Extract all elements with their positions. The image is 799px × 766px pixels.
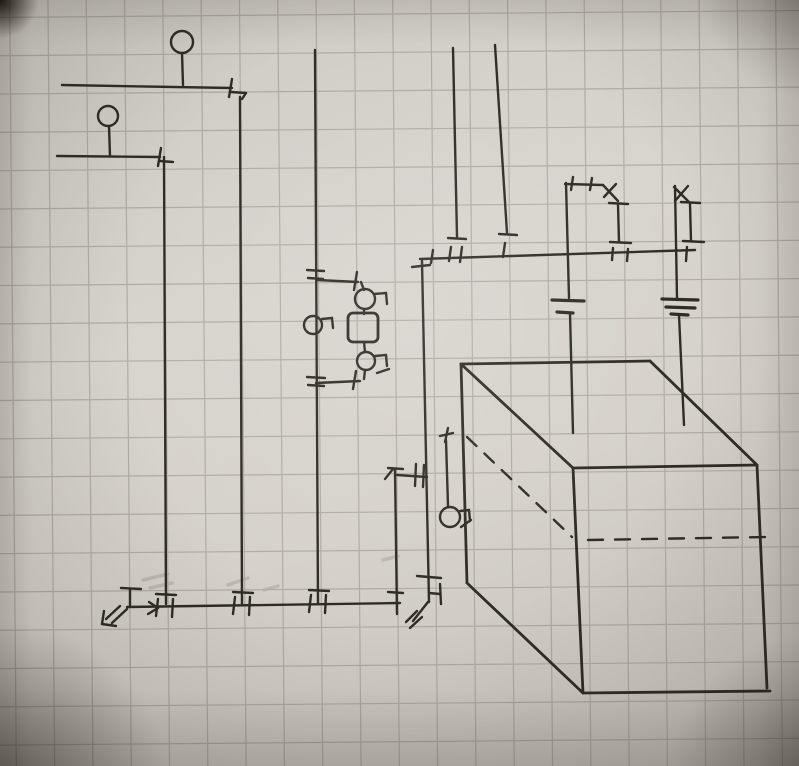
pipe-line [231,92,246,93]
grid-line [431,0,438,766]
grid-line [392,0,399,766]
pipe-line [662,299,698,300]
pipe-line [446,440,448,506]
pipe-line [322,318,332,319]
pipe-line [364,342,365,352]
circle-symbol [98,106,118,126]
pipe-line [429,593,440,594]
pipe-line [453,48,457,237]
pipe-line [583,691,770,693]
pencil-smudge [143,574,168,580]
grid-line [0,623,799,630]
pipe-line [604,184,616,197]
grid-line [0,10,799,17]
pipe-line [377,369,389,373]
pipe-line [233,592,253,593]
grid-line [0,393,799,400]
grid-line [0,202,799,209]
circle-symbol [171,31,193,53]
pipe-line [415,464,416,486]
pipe-line [307,270,324,271]
pipe-line [309,590,329,591]
grid-line [0,49,799,56]
grid-line [9,0,16,766]
grid-line [0,585,799,592]
pipe-line [102,624,116,626]
grid-line [0,547,799,554]
grid-line [0,661,799,668]
sketch-svg [0,0,799,766]
pipe-line [499,234,517,235]
grid-line [507,0,514,766]
pipe-line [332,318,333,328]
pipe-line [364,370,365,379]
grid-line [546,0,553,766]
grid-line [86,0,93,766]
grid-line [0,164,799,171]
component-box [348,313,378,342]
pipe-line [618,205,619,242]
pipe-line [158,148,161,166]
pipe-line [156,599,158,616]
pipe-line [666,307,695,308]
pipe-line [109,126,110,156]
grid-line [661,0,668,766]
pipe-line [757,465,767,688]
pipe-line [249,597,250,615]
grid-line [737,0,744,766]
pipe-line [603,185,618,201]
grid-line [278,0,285,766]
grid-line [0,700,799,707]
pencil-smudge [150,583,172,588]
pipe-line [229,79,232,97]
pipe-line [386,293,387,304]
grid-line [201,0,208,766]
pipe-line [308,385,324,386]
pipe-line [461,361,650,364]
pipe-line [467,583,583,693]
pipe-line [182,53,183,85]
pipe-line [309,595,311,612]
pipe-line [240,97,242,604]
grid-line [0,508,799,515]
pipe-line [573,465,757,468]
pipe-line [388,592,403,593]
pipe-line [448,238,466,239]
pipe-line [308,278,323,279]
circle-symbol [440,507,460,527]
pipe-line [417,576,441,578]
grid-line [124,0,131,766]
grid-line [0,432,799,439]
grid-line [622,0,629,766]
grid-line [699,0,706,766]
circle-symbol [357,352,375,370]
pipe-line [573,468,583,693]
pipe-line [388,468,403,469]
pipe-line [610,242,631,243]
circle-symbol [355,289,375,309]
pipe-line [375,355,386,356]
grid-line [0,278,799,285]
pipe-line [102,611,104,624]
pipe-line [164,157,166,604]
pipe-line [386,355,387,366]
pipe-line [552,300,584,301]
pipe-line [423,465,424,487]
pipe-line [609,203,628,204]
pipe-line [681,202,700,203]
grid-line [584,0,591,766]
pipe-line [503,243,505,257]
pipe-line [627,249,628,261]
hidden-dashed-line [588,537,766,540]
pipe-line [571,177,573,190]
grid-line [0,87,799,94]
pipe-line [445,428,448,442]
grid-line [469,0,476,766]
pipe-line [57,156,160,157]
pipe-line [690,204,691,241]
graph-paper-grid [0,0,799,766]
pipe-line [461,364,573,468]
pipe-line [612,248,613,260]
pipe-line [686,247,687,261]
pipe-line [412,265,430,267]
grid-line [0,125,799,132]
grid-line [354,0,361,766]
pipe-line [307,377,325,378]
grid-line [0,240,799,247]
pipe-line [121,588,141,589]
pipe-line [160,161,173,162]
pipe-line [325,595,326,613]
pipe-line [156,594,176,595]
pipe-line [317,280,358,282]
pipe-line [422,261,429,602]
pipe-line [679,315,684,425]
pipe-line [353,371,356,389]
pipe-line [590,178,592,190]
grid-line [48,0,55,766]
grid-line [0,355,799,362]
pipe-line [374,293,386,294]
grid-line [775,0,782,766]
pipe-line [460,247,462,262]
pipe-line [683,241,704,242]
pipe-line [570,313,573,433]
pipe-line [233,597,235,614]
photo-of-graph-paper-sketch [0,0,799,766]
pipe-line [172,599,173,617]
